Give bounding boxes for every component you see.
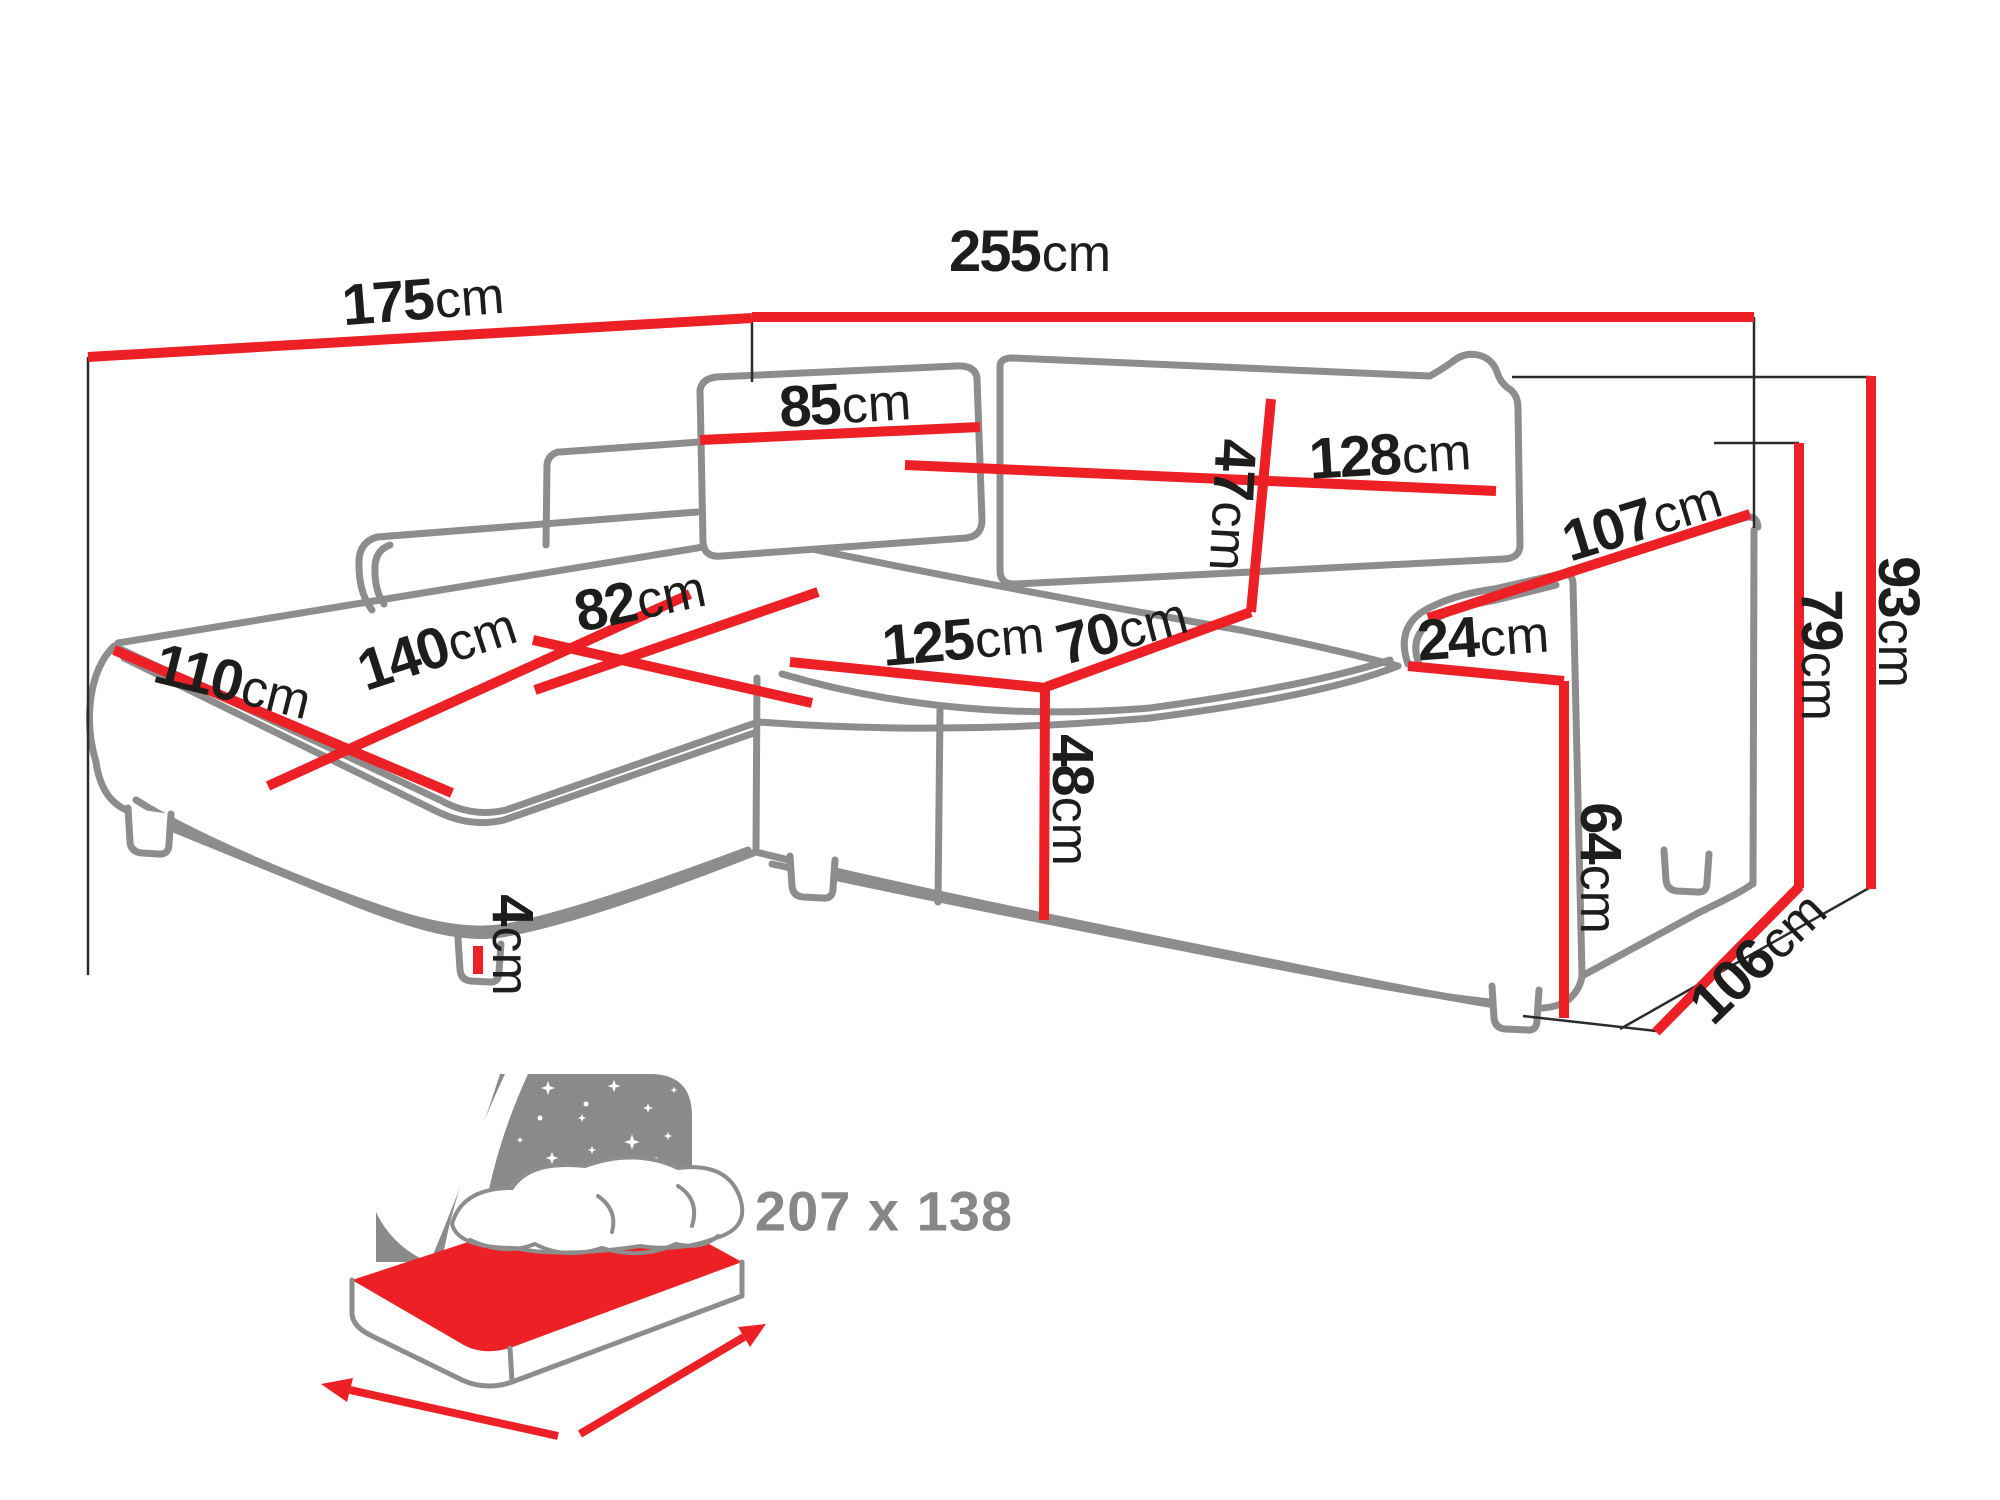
bed-icon-arrows bbox=[321, 1324, 766, 1436]
chaise-arm-top-edge bbox=[377, 512, 697, 537]
dimension-label-79: 79cm bbox=[1792, 589, 1850, 721]
sofa-leg bbox=[1492, 986, 1539, 1030]
armrest-back-edge bbox=[1753, 530, 1754, 884]
chaise-main-seam bbox=[756, 678, 757, 850]
front-bottom-edge bbox=[756, 852, 1582, 1008]
sleeping-area-label: 207 x 138 bbox=[755, 1179, 1013, 1244]
dimension-label-255: 255cm bbox=[949, 223, 1111, 281]
sofa-leg bbox=[1664, 850, 1709, 892]
backrest-left-edge bbox=[546, 452, 558, 545]
dimension-label-48: 48cm bbox=[1043, 734, 1101, 866]
sofa-leg bbox=[790, 856, 835, 898]
dimension-label-125: 125cm bbox=[880, 604, 1047, 676]
backrest-left-top bbox=[560, 442, 700, 452]
sofa-outline bbox=[90, 354, 1758, 1008]
dimension-label-85: 85cm bbox=[777, 371, 912, 437]
dimension-label-175: 175cm bbox=[340, 265, 506, 336]
sofa-leg bbox=[128, 808, 171, 854]
front-face-seam bbox=[938, 710, 940, 902]
dimension-label-64: 64cm bbox=[1571, 802, 1629, 934]
dimension-diagram: 175cm 255cm 85cm 128cm 47cm 107cm 110cm … bbox=[0, 0, 2000, 1500]
dimension-label-128: 128cm bbox=[1307, 421, 1472, 489]
dimension-label-93: 93cm bbox=[1869, 556, 1927, 688]
bed-icon-curtain-wedge bbox=[376, 1212, 428, 1262]
bed-icon bbox=[0, 1074, 766, 1436]
chaise-arm-cap-inner bbox=[375, 545, 390, 604]
chaise-front-face-inner bbox=[136, 800, 748, 929]
dimension-label-47: 47cm bbox=[1200, 438, 1265, 573]
dimension-label-24: 24cm bbox=[1415, 603, 1551, 670]
dimension-label-4: 4cm bbox=[483, 894, 541, 996]
